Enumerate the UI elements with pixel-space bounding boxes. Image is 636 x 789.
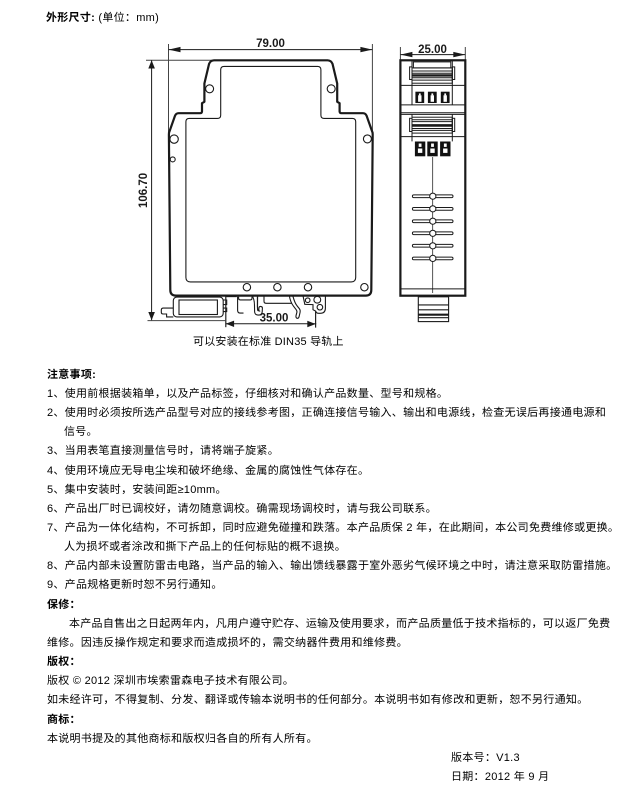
svg-text:35.00: 35.00 <box>260 313 289 325</box>
svg-text:106.70: 106.70 <box>138 173 150 208</box>
svg-text:79.00: 79.00 <box>256 38 285 50</box>
svg-text:25.00: 25.00 <box>418 44 447 56</box>
